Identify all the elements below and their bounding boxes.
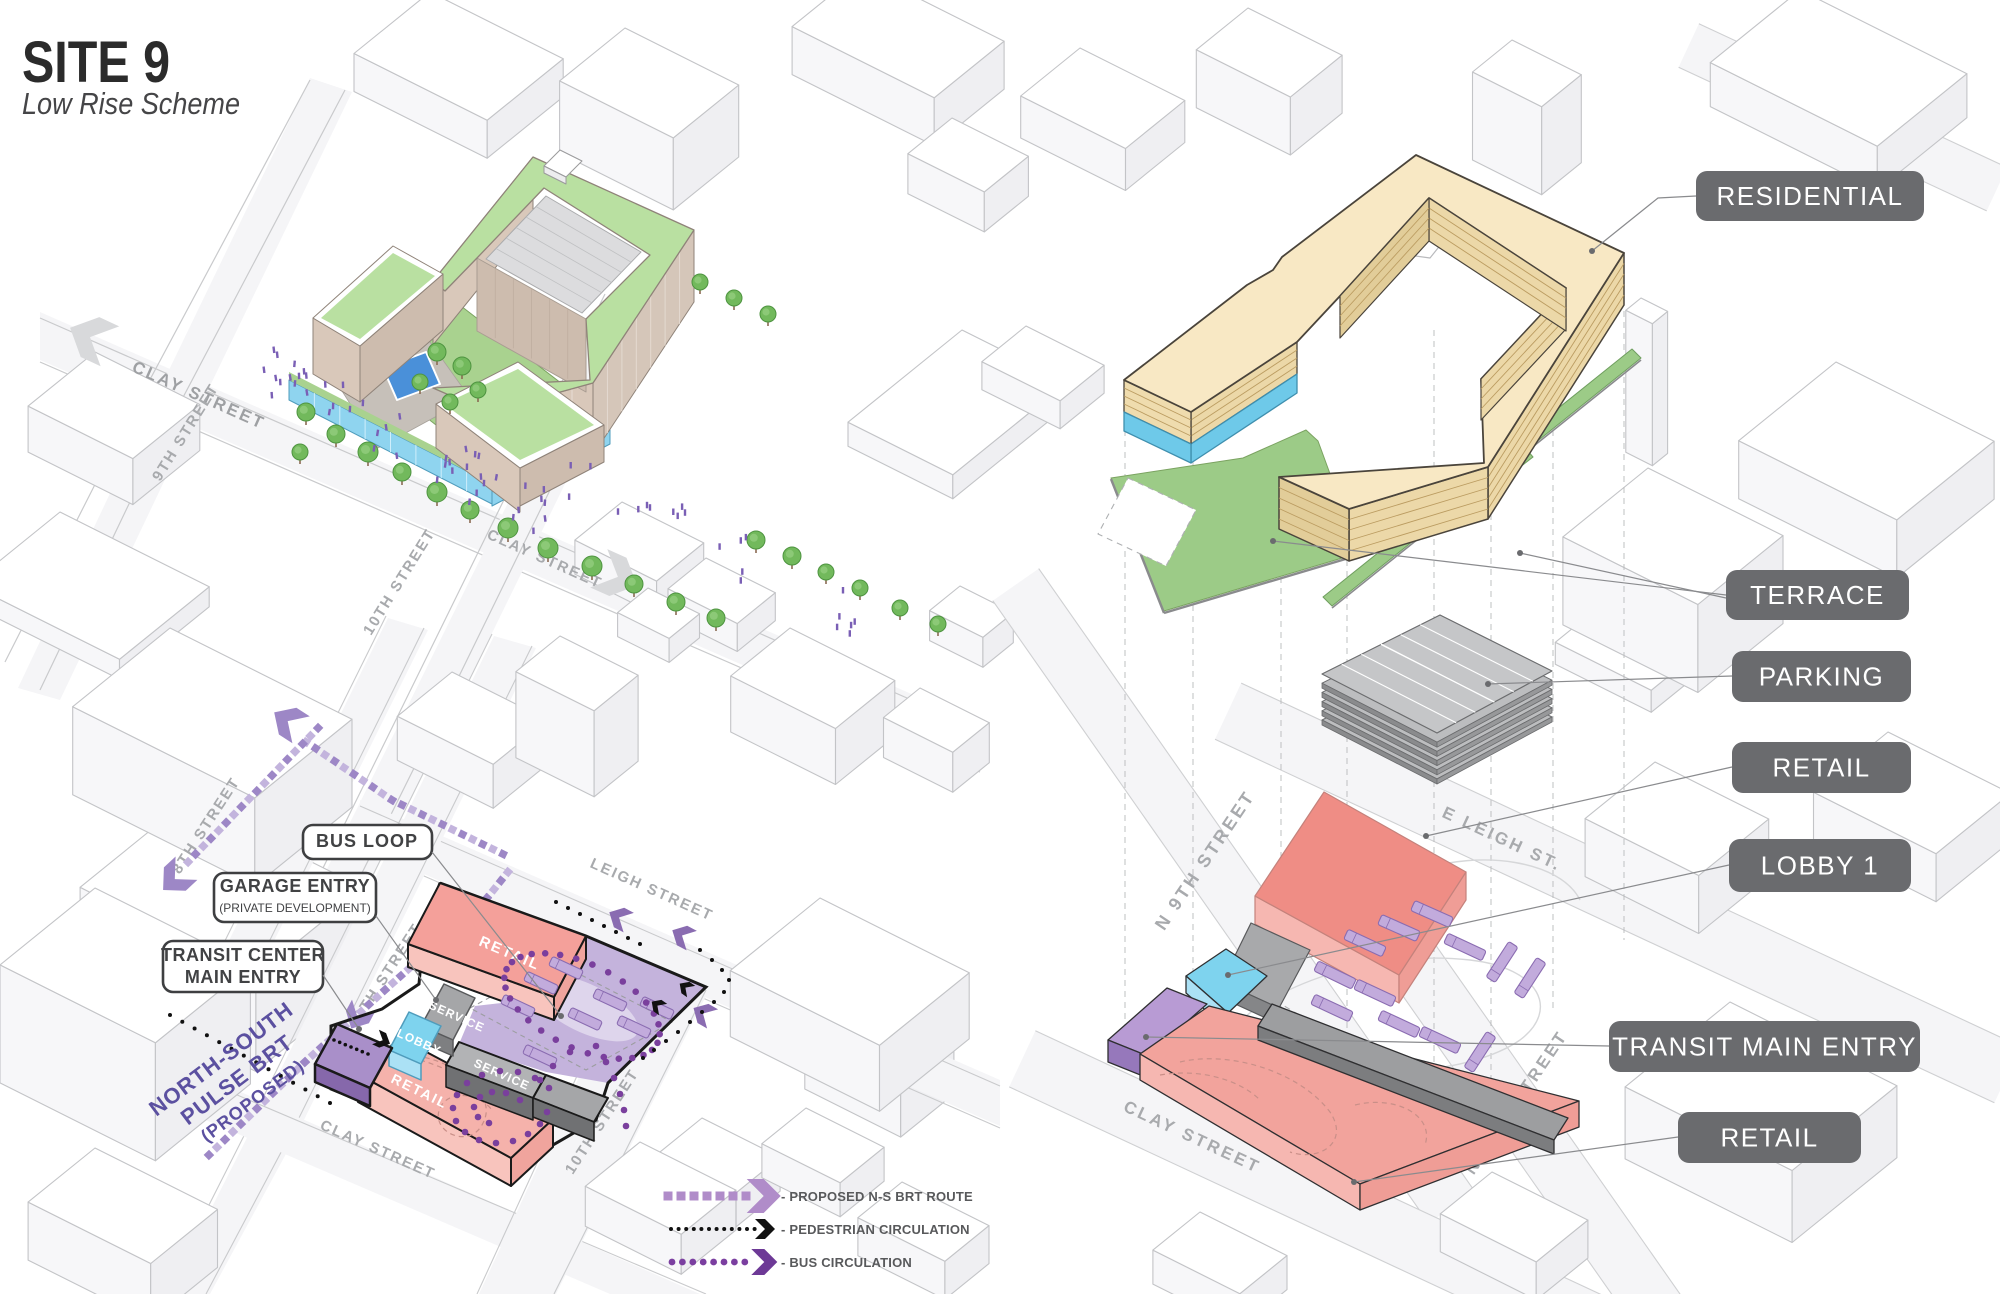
svg-text:RETAIL: RETAIL [1720, 1123, 1818, 1153]
svg-text:RETAIL: RETAIL [1772, 753, 1870, 783]
svg-text:TRANSIT MAIN ENTRY: TRANSIT MAIN ENTRY [1612, 1032, 1917, 1062]
svg-text:MAIN ENTRY: MAIN ENTRY [185, 967, 301, 987]
svg-text:TERRACE: TERRACE [1750, 580, 1885, 610]
svg-text:BUS LOOP: BUS LOOP [316, 831, 418, 851]
svg-text:GARAGE ENTRY: GARAGE ENTRY [220, 876, 370, 896]
svg-text:(PRIVATE DEVELOPMENT): (PRIVATE DEVELOPMENT) [219, 901, 371, 915]
svg-text:- PEDESTRIAN CIRCULATION: - PEDESTRIAN CIRCULATION [781, 1222, 970, 1237]
svg-text:TRANSIT CENTER: TRANSIT CENTER [161, 945, 325, 965]
svg-text:LOBBY 1: LOBBY 1 [1761, 851, 1879, 881]
svg-text:- BUS CIRCULATION: - BUS CIRCULATION [781, 1255, 912, 1270]
svg-text:PARKING: PARKING [1759, 662, 1885, 692]
svg-text:RESIDENTIAL: RESIDENTIAL [1717, 181, 1904, 211]
svg-text:- PROPOSED N-S BRT ROUTE: - PROPOSED N-S BRT ROUTE [781, 1189, 973, 1204]
svg-text:Low Rise Scheme: Low Rise Scheme [22, 86, 240, 121]
